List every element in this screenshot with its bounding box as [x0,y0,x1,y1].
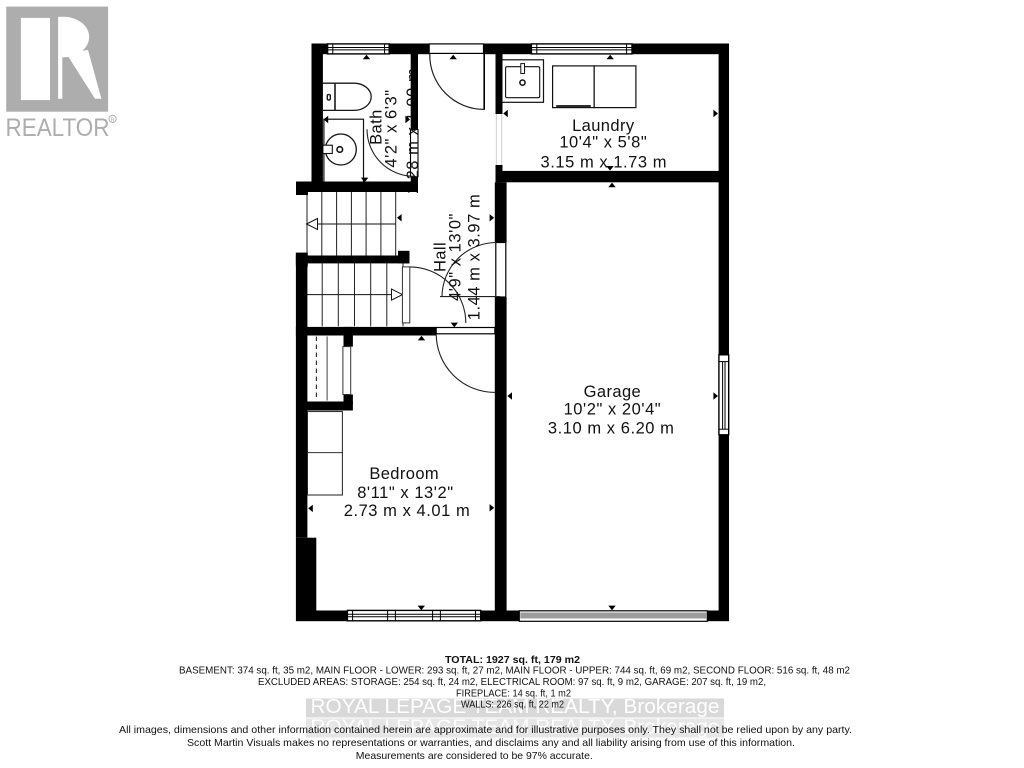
svg-text:2.73 m x 4.01 m: 2.73 m x 4.01 m [344,502,471,520]
svg-text:R: R [111,117,115,123]
svg-text:3.10 m x 6.20 m: 3.10 m x 6.20 m [548,420,675,438]
svg-text:Bedroom: Bedroom [369,465,439,483]
svg-text:TOTAL: 1927 sq. ft, 179 m2: TOTAL: 1927 sq. ft, 179 m2 [445,654,580,666]
svg-text:1.44 m x 3.97 m: 1.44 m x 3.97 m [466,194,484,321]
svg-text:REALTOR: REALTOR [6,114,110,142]
svg-text:4'9" x 13'0": 4'9" x 13'0" [446,213,464,301]
svg-text:All images, dimensions and oth: All images, dimensions and other informa… [119,725,852,736]
svg-text:10'2" x 20'4": 10'2" x 20'4" [564,401,662,419]
svg-text:4'2" x 6'3": 4'2" x 6'3" [383,89,401,167]
svg-text:Scott Martin Visuals makes no: Scott Martin Visuals makes no representa… [187,738,795,749]
svg-text:10'4" x 5'8": 10'4" x 5'8" [559,134,647,152]
svg-text:3.15 m x 1.73 m: 3.15 m x 1.73 m [541,154,668,172]
svg-text:FIREPLACE: 14 sq. ft, 1 m2: FIREPLACE: 14 sq. ft, 1 m2 [456,688,571,699]
svg-text:Laundry: Laundry [572,117,635,135]
svg-text:EXCLUDED AREAS: STORAGE: 254 s: EXCLUDED AREAS: STORAGE: 254 sq. ft, 24 … [258,677,766,688]
svg-text:Garage: Garage [584,383,641,401]
svg-text:Measurements are considered to: Measurements are considered to be 97% ac… [356,751,593,762]
svg-text:BASEMENT: 374 sq. ft, 35 m2, M: BASEMENT: 374 sq. ft, 35 m2, MAIN FLOOR … [179,666,850,677]
svg-text:8'11" x 13'2": 8'11" x 13'2" [357,484,453,502]
svg-text:WALLS: 226 sq. ft, 22 m2: WALLS: 226 sq. ft, 22 m2 [461,700,564,711]
